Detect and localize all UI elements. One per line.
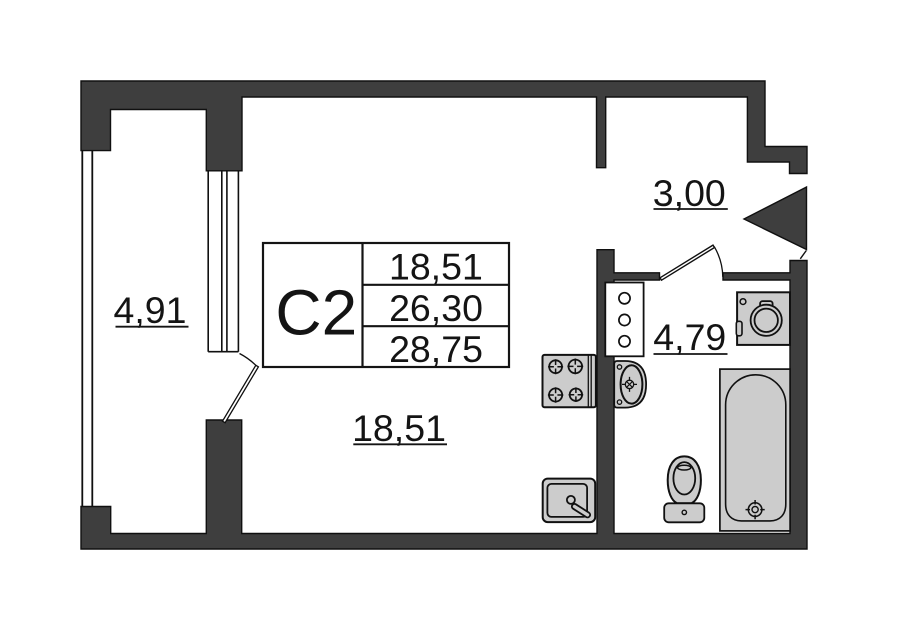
svg-text:C2: C2 (275, 277, 357, 349)
svg-text:18,51: 18,51 (389, 245, 483, 287)
svg-text:4,91: 4,91 (114, 289, 187, 331)
svg-text:18,51: 18,51 (352, 407, 446, 449)
svg-text:26,30: 26,30 (389, 287, 483, 329)
svg-text:28,75: 28,75 (389, 328, 483, 370)
svg-text:3,00: 3,00 (653, 172, 726, 214)
svg-text:4,79: 4,79 (653, 316, 726, 358)
